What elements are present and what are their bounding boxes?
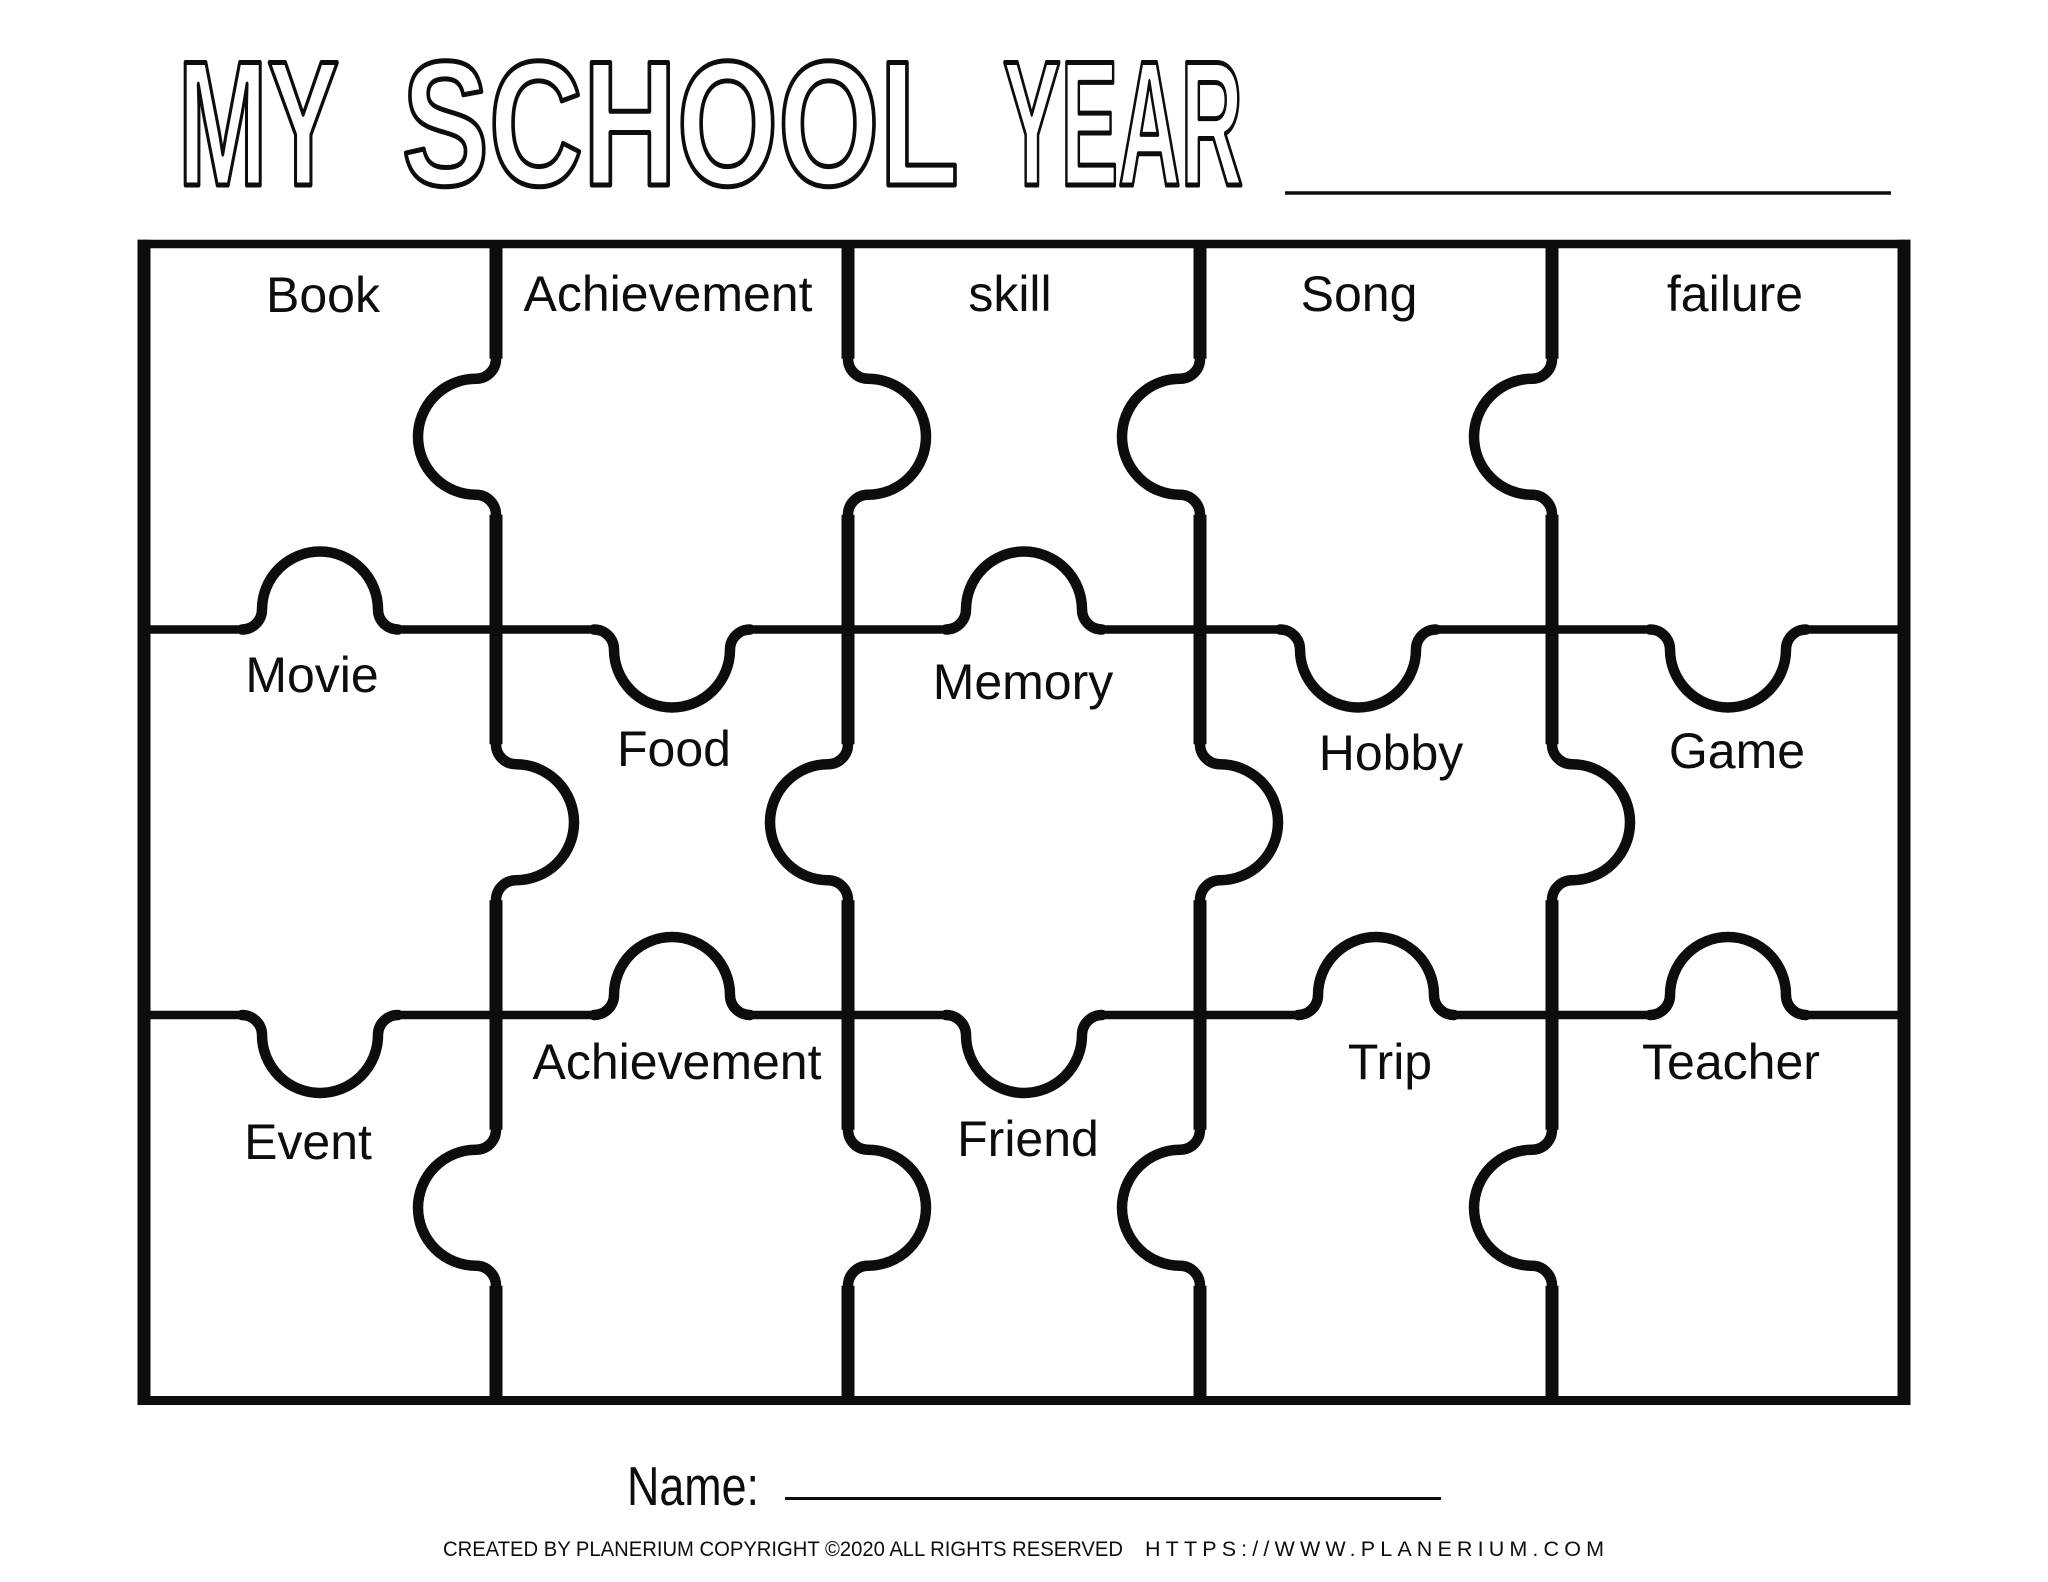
svg-text:Friend: Friend bbox=[957, 1111, 1099, 1167]
svg-text:Game: Game bbox=[1669, 723, 1805, 779]
svg-text:Food: Food bbox=[617, 721, 731, 777]
svg-text:Memory: Memory bbox=[933, 654, 1114, 710]
svg-text:Achievement: Achievement bbox=[523, 266, 812, 322]
svg-text:Hobby: Hobby bbox=[1319, 725, 1464, 781]
svg-text:Song: Song bbox=[1301, 266, 1418, 322]
svg-text:Book: Book bbox=[266, 267, 381, 323]
svg-text:Teacher: Teacher bbox=[1642, 1034, 1820, 1090]
svg-text:Name:: Name: bbox=[627, 1455, 759, 1517]
svg-text:CREATED BY PLANERIUM COPYRIGHT: CREATED BY PLANERIUM COPYRIGHT ©2020 ALL… bbox=[443, 1537, 1123, 1561]
svg-text:Achievement: Achievement bbox=[532, 1034, 821, 1090]
svg-text:Trip: Trip bbox=[1348, 1034, 1432, 1090]
svg-text:MY: MY bbox=[178, 24, 339, 223]
svg-text:Movie: Movie bbox=[245, 647, 378, 703]
svg-text:YEAR: YEAR bbox=[1003, 24, 1243, 223]
svg-text:SCHOOL: SCHOOL bbox=[402, 24, 959, 223]
svg-text:HTTPS://WWW.PLANERIUM.COM: HTTPS://WWW.PLANERIUM.COM bbox=[1145, 1537, 1604, 1561]
svg-text:failure: failure bbox=[1667, 266, 1803, 322]
svg-text:Event: Event bbox=[244, 1114, 372, 1170]
svg-text:skill: skill bbox=[968, 266, 1051, 322]
